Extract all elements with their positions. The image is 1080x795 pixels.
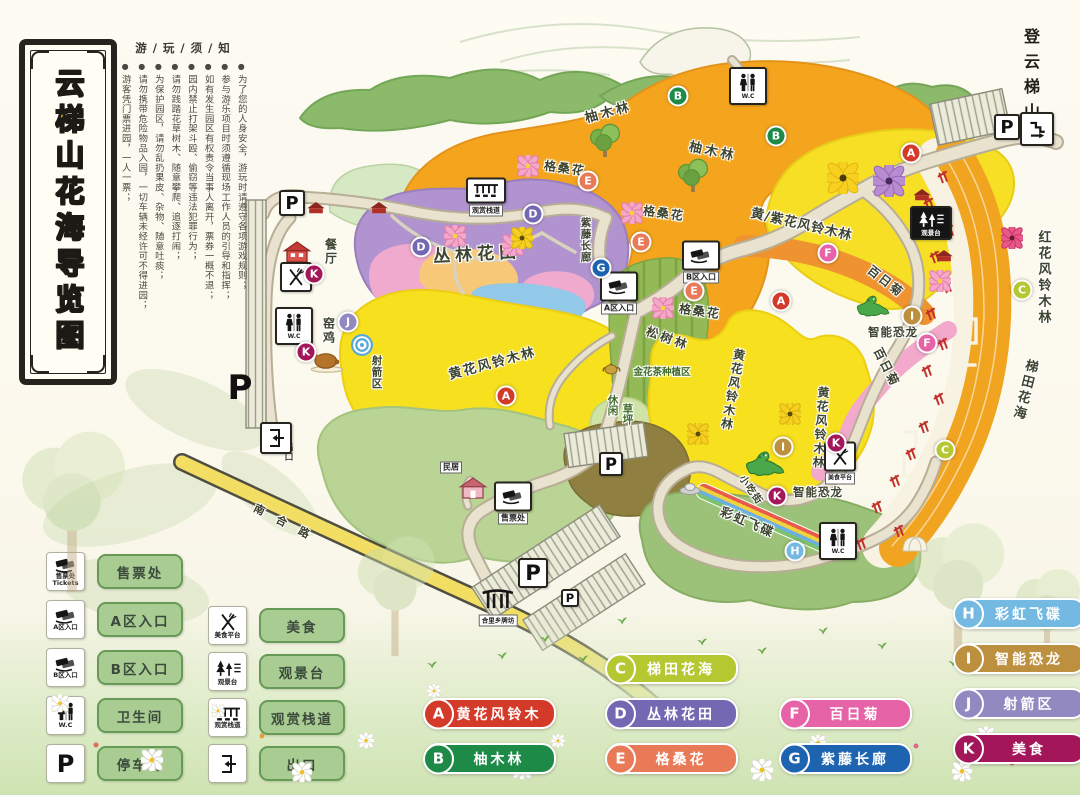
map-badge-I: I: [902, 306, 923, 327]
legend-badge-J: J射箭区: [954, 688, 1080, 719]
sign-p: P: [599, 452, 623, 476]
sign-box: [466, 178, 506, 204]
sign-entrance-B区入口: B区入口: [682, 241, 720, 284]
legend-badge-label: 柚木林: [474, 749, 525, 769]
legend-item-观赏栈道: 观赏栈道观赏栈道: [208, 698, 345, 737]
map-label-紫藤长廊: 紫藤长廊: [579, 217, 594, 263]
terrace-flower-mark: [904, 444, 921, 466]
daisy-icon: [141, 749, 163, 775]
map-label-金花茶种植区: 金花茶种植区: [633, 364, 690, 378]
legend-badge-letter: I: [953, 643, 984, 674]
map-badge-D: D: [523, 204, 544, 225]
wc-caption: W.C: [288, 333, 301, 340]
decor-house-pink-icon: [458, 476, 488, 505]
legend-item-A区入口: A区入口A区入口: [46, 600, 183, 639]
terrace-flower-mark: [870, 497, 887, 519]
terrace-flower-mark: [932, 389, 949, 411]
parking-icon: P: [605, 455, 617, 474]
legend-badge-label: 彩虹飞碟: [995, 604, 1063, 624]
legend-label: 美食: [259, 608, 345, 643]
daisy-icon: [358, 733, 373, 751]
legend-badge-label: 射箭区: [1004, 694, 1055, 714]
legend-item-出口: 出口: [208, 744, 345, 783]
sign-box: [1020, 112, 1054, 146]
sign-box: [682, 241, 720, 271]
map-badge-A: A: [496, 386, 517, 407]
map-badge-E: E: [578, 171, 599, 192]
parking-icon: P: [525, 561, 541, 586]
legend-badge-letter: A: [423, 698, 454, 729]
legend-badge-letter: C: [605, 653, 636, 684]
notice-line: 请勿践踏花草树木、随意攀爬、追逐打闹；: [167, 62, 182, 378]
daisy-icon: [551, 734, 564, 750]
decor-yellow-flower-icon: [511, 227, 533, 253]
sign-box: P: [561, 589, 579, 607]
legend-badge-I: I智能恐龙: [954, 643, 1080, 674]
decor-redbldg-icon: [912, 187, 932, 206]
legend-badge-letter: H: [953, 598, 984, 629]
sign-p: P: [518, 558, 548, 588]
corner-ornament: [87, 51, 105, 69]
legend-item-B区入口: B区入口B区入口: [46, 648, 183, 687]
sign-p: P: [279, 190, 305, 216]
legend-label: B区入口: [97, 650, 183, 685]
decor-target-icon: [351, 334, 373, 360]
legend-badge-F: F百日菊: [780, 698, 912, 729]
exit-icon: [208, 744, 247, 783]
map-badge-C: C: [935, 440, 956, 461]
sign-p-plain: P: [228, 368, 253, 408]
corner-ornament: [31, 51, 49, 69]
icon-caption: 观景台: [218, 679, 238, 686]
sign-p: P: [994, 114, 1020, 140]
legend-badge-E: E格桑花: [606, 743, 738, 774]
map-badge-K: K: [304, 264, 325, 285]
legend-item-观景台: 观景台观景台: [208, 652, 345, 691]
map-badge-E: E: [684, 281, 705, 302]
map-badge-J: J: [338, 312, 359, 333]
legend-badge-label: 梯田花海: [647, 659, 715, 679]
sign-box: [494, 482, 532, 512]
map-badge-B: B: [766, 126, 787, 147]
map-label-草坪: 草坪: [621, 404, 636, 425]
gate-icon: [481, 588, 515, 614]
legend-badge-K: K美食: [954, 733, 1080, 764]
notice-line: 游客凭门票进园，一人一票；: [117, 62, 132, 378]
legend-item-美食: 美食平台美食: [208, 606, 345, 645]
map-badge-K: K: [296, 342, 317, 363]
parking-icon: P: [285, 193, 298, 214]
sign-wc: W.C: [275, 307, 313, 345]
map-label-松树林: 松树林: [644, 322, 692, 353]
map-label-梯田花海: 梯田花海: [1007, 357, 1041, 424]
sign-box: P: [279, 190, 305, 216]
map-label-窑鸡: 窑鸡: [321, 317, 338, 345]
decor-pink-flower-icon: [652, 297, 674, 323]
legend-badge-letter: B: [423, 743, 454, 774]
parking-letter: P: [57, 750, 75, 778]
decor-yellow-flower-icon: [687, 423, 709, 449]
legend-badge-label: 美食: [1012, 739, 1046, 759]
notice-line: 如有发生园区有权责令当事人离开，票券一概不退；: [200, 62, 215, 378]
map-label-红花风铃木林: 红花风铃木林: [1034, 230, 1053, 326]
decor-yellow-flower-icon: [779, 403, 801, 429]
sign-ticket-售票处: 售票处: [494, 482, 532, 525]
notice-line: 为了您的人身安全，游玩时请遵守各项游戏规则；: [233, 62, 248, 378]
decor-dino-icon: [855, 294, 891, 321]
visitor-notice: 游 / 玩 / 须 / 知 为了您的人身安全，游玩时请遵守各项游戏规则；参与游乐…: [114, 40, 252, 388]
terrace-flower-mark: [920, 361, 937, 383]
legend-badge-letter: G: [779, 743, 810, 774]
sign-caption: 民居: [440, 462, 462, 474]
decor-pink-flower-icon: [444, 225, 466, 251]
pale-tree-icon: [16, 419, 128, 601]
decor-pink-flower-icon: [621, 202, 643, 228]
decor-pink-flower-icon: [517, 155, 539, 181]
sign-p: P: [561, 589, 579, 607]
sign-box: W.C: [729, 67, 767, 105]
terrace-flower-mark: [936, 167, 953, 189]
map-badge-F: F: [917, 333, 938, 354]
daisy-icon: [751, 759, 773, 785]
poster-title: 云梯山花海导览图: [47, 68, 89, 356]
legend-badge-label: 格桑花: [656, 749, 707, 769]
decor-pink-flower-icon: [929, 270, 951, 296]
legend-badge-A: A黄花风铃木: [424, 698, 556, 729]
sign-box: [260, 422, 292, 454]
sign-box: P: [994, 114, 1020, 140]
icon-caption: 观赏栈道: [215, 722, 241, 729]
legend-label: A区入口: [97, 602, 183, 637]
legend-badge-B: B柚木林: [424, 743, 556, 774]
sign-caption: A区入口: [601, 303, 637, 315]
decor-red-flower-icon: [1001, 227, 1023, 253]
map-badge-E: E: [631, 232, 652, 253]
map-badge-G: G: [591, 258, 612, 279]
notice-line: 请勿携带危险物品入园，一切车辆未经许可不得进园；: [134, 62, 149, 378]
map-badge-H: H: [785, 541, 806, 562]
legend-badge-letter: J: [953, 688, 984, 719]
parking-icon: P: [228, 368, 253, 408]
map-label-格桑花: 格桑花: [642, 202, 686, 225]
decor-purplebig-flower-icon: [873, 165, 905, 201]
decor-tree-icon: [676, 155, 710, 199]
icon-caption: B区入口: [53, 672, 77, 679]
map-label-黄花风铃木林: 黄花风铃木林: [446, 341, 538, 383]
notice-line: 园内禁止打架斗殴、偷窃等违法犯罪行为；: [184, 62, 199, 378]
legend-badge-letter: E: [605, 743, 636, 774]
map-label-餐厅: 餐厅: [323, 238, 340, 266]
sign-label-box-民居: 民居: [440, 461, 462, 474]
sign-viewdeck-观景台: 观景台: [910, 206, 952, 240]
viewdeck-icon: 观景台: [208, 652, 247, 691]
corner-ornament: [87, 355, 105, 373]
decor-ufo-icon: [678, 481, 702, 500]
decor-redbldg-icon: [369, 200, 389, 219]
sign-slide: [1020, 112, 1054, 146]
decor-redbldg-icon: [306, 200, 326, 219]
sign-wc: W.C: [729, 67, 767, 105]
legend-badge-letter: D: [605, 698, 636, 729]
icon-caption: W.C: [59, 722, 73, 729]
map-badge-I: I: [773, 437, 794, 458]
wc-caption: W.C: [742, 93, 755, 100]
pale-tree-icon: [353, 527, 437, 664]
legend-badge-label: 黄花风铃木: [457, 704, 542, 724]
parking-icon: P: [1000, 117, 1013, 138]
sign-entrance-A区入口: A区入口: [600, 272, 638, 315]
guide-map-poster: 柚木林柚木林格桑花格桑花格桑花丛林花田黄花风铃木林黄花风铃木林黄花风铃木林黄/紫…: [0, 0, 1080, 795]
ticket-icon: A区入口: [46, 600, 85, 639]
legend-badge-H: H彩虹飞碟: [954, 598, 1080, 629]
p-icon: P: [46, 744, 85, 783]
viewdeck-caption: 观景台: [921, 230, 941, 237]
legend-badge-G: G紫藤长廊: [780, 743, 912, 774]
map-badge-K: K: [767, 486, 788, 507]
parking-icon: P: [566, 591, 574, 605]
legend-label: 观景台: [259, 654, 345, 689]
legend-badge-letter: K: [953, 733, 984, 764]
sign-caption: 美食平台: [825, 473, 855, 485]
decor-redbldg-icon: [934, 248, 954, 267]
map-badge-F: F: [818, 243, 839, 264]
notice-line: 参与游乐项目时须遵循现场工作人员的引导和指挥；: [217, 62, 232, 378]
notice-line: 为保护园区，请勿乱扔果皮、杂物、随意吐痰；: [150, 62, 165, 378]
notice-header: 游 / 玩 / 须 / 知: [114, 40, 252, 56]
daisy-icon: [51, 695, 69, 716]
sign-box: 观景台: [910, 206, 952, 240]
sign-gate-合里乡牌坊: 合里乡牌坊: [479, 588, 518, 627]
decor-teapot-icon: [602, 360, 622, 379]
map-badge-D: D: [411, 237, 432, 258]
daisy-icon: [952, 761, 972, 784]
food-icon: 美食平台: [208, 606, 247, 645]
decor-dome-icon: [902, 534, 928, 556]
wc-caption: W.C: [832, 548, 845, 555]
map-label-黄花风铃木林: 黄花风铃木林: [717, 347, 748, 433]
legend-label: 停车场: [97, 746, 183, 781]
map-badge-B: B: [668, 86, 689, 107]
terrace-flower-mark: [924, 304, 941, 326]
sign-box: P: [599, 452, 623, 476]
icon-caption: A区入口: [53, 624, 78, 631]
sign-caption: 观赏栈道: [469, 205, 503, 217]
notice-lines: 为了您的人身安全，游玩时请遵守各项游戏规则；参与游乐项目时须遵循现场工作人员的引…: [116, 62, 250, 378]
legend-badge-C: C梯田花海: [606, 653, 738, 684]
map-badge-K: K: [826, 433, 847, 454]
daisy-icon: [292, 762, 312, 785]
map-label-黄/紫花风铃木林: 黄/紫花风铃木林: [749, 202, 854, 244]
map-label-格桑花: 格桑花: [678, 300, 722, 323]
sign-box: P: [518, 558, 548, 588]
terrace-flower-mark: [917, 417, 934, 439]
legend-badge-letter: F: [779, 698, 810, 729]
map-badge-A: A: [901, 143, 922, 164]
terrace-flower-mark: [936, 334, 953, 356]
decor-yellowbig-flower-icon: [827, 162, 859, 198]
icon-caption: 美食平台: [215, 632, 241, 639]
terrace-flower-mark: [888, 471, 905, 493]
decor-tree-icon: [588, 120, 622, 164]
sign-box: W.C: [275, 307, 313, 345]
sign-caption: 售票处: [498, 513, 528, 525]
poster-title-box: 云梯山花海导览图: [22, 42, 114, 382]
sign-boardwalk-观赏栈道: 观赏栈道: [466, 178, 506, 217]
legend-badge-label: 紫藤长廊: [821, 749, 889, 769]
legend-badge-D: D丛林花田: [606, 698, 738, 729]
map-label-南合路: 南合路: [251, 500, 325, 548]
legend-badge-label: 智能恐龙: [995, 649, 1063, 669]
sign-caption: 合里乡牌坊: [479, 615, 518, 627]
map-label-休闲: 休闲: [606, 395, 621, 416]
ticket-icon: B区入口: [46, 648, 85, 687]
daisy-icon: [211, 704, 224, 720]
map-badge-A: A: [771, 291, 792, 312]
legend-badge-label: 百日菊: [830, 704, 881, 724]
legend-badge-label: 丛林花田: [647, 704, 715, 724]
sign-box: W.C: [819, 522, 857, 560]
sign-exit: [260, 422, 292, 454]
map-label-百日菊: 百日菊: [870, 344, 904, 389]
map-badge-C: C: [1012, 280, 1033, 301]
map-label-智能恐龙: 智能恐龙: [793, 484, 843, 500]
legend-label: 观赏栈道: [259, 700, 345, 735]
sign-wc: W.C: [819, 522, 857, 560]
corner-ornament: [31, 355, 49, 373]
legend-label: 卫生间: [97, 698, 183, 733]
